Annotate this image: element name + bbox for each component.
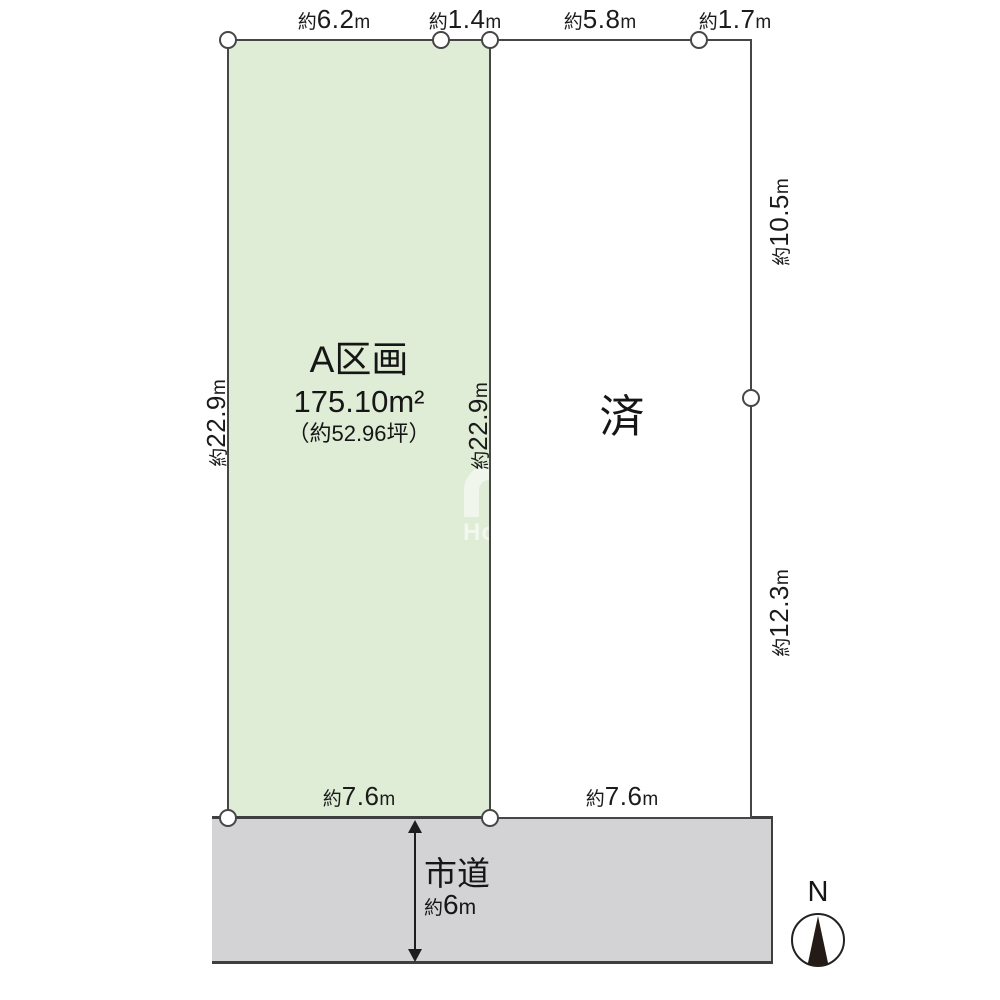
arrow-up-icon xyxy=(408,820,422,833)
arrow-down-icon xyxy=(408,949,422,962)
dim-top-2: 約1.4m xyxy=(400,4,530,34)
boundary-marker xyxy=(219,809,237,827)
boundary-marker xyxy=(219,31,237,49)
dim-top-1: 約6.2m xyxy=(269,4,399,34)
dim-left-side: 約22.9m xyxy=(201,358,231,488)
dim-top-3: 約5.8m xyxy=(535,4,665,34)
dim-right-lower: 約12.3m xyxy=(764,548,794,678)
land-plot-diagram: Ho 約6.2m 約1.4m 約5.8m 約1.7m 約22.9m 約22.9m… xyxy=(0,0,1000,1000)
compass-north-label: N xyxy=(798,878,838,907)
plot-a-area: 175.10m² xyxy=(239,386,479,417)
plot-b-status: 済 xyxy=(562,394,682,439)
dim-bottom-right: 約7.6m xyxy=(557,781,687,811)
road-width: 約6m xyxy=(424,891,476,919)
plot-a-tsubo: （約52.96坪） xyxy=(239,423,479,445)
road-width-arrow xyxy=(414,831,416,952)
plot-a-name: A区画 xyxy=(239,341,479,378)
boundary-marker xyxy=(742,389,760,407)
dim-right-upper: 約10.5m xyxy=(764,157,794,287)
dim-top-4: 約1.7m xyxy=(670,4,800,34)
boundary-marker xyxy=(481,809,499,827)
road-name: 市道 xyxy=(424,857,490,890)
dim-bottom-left: 約7.6m xyxy=(294,781,424,811)
road-strip xyxy=(212,816,773,964)
